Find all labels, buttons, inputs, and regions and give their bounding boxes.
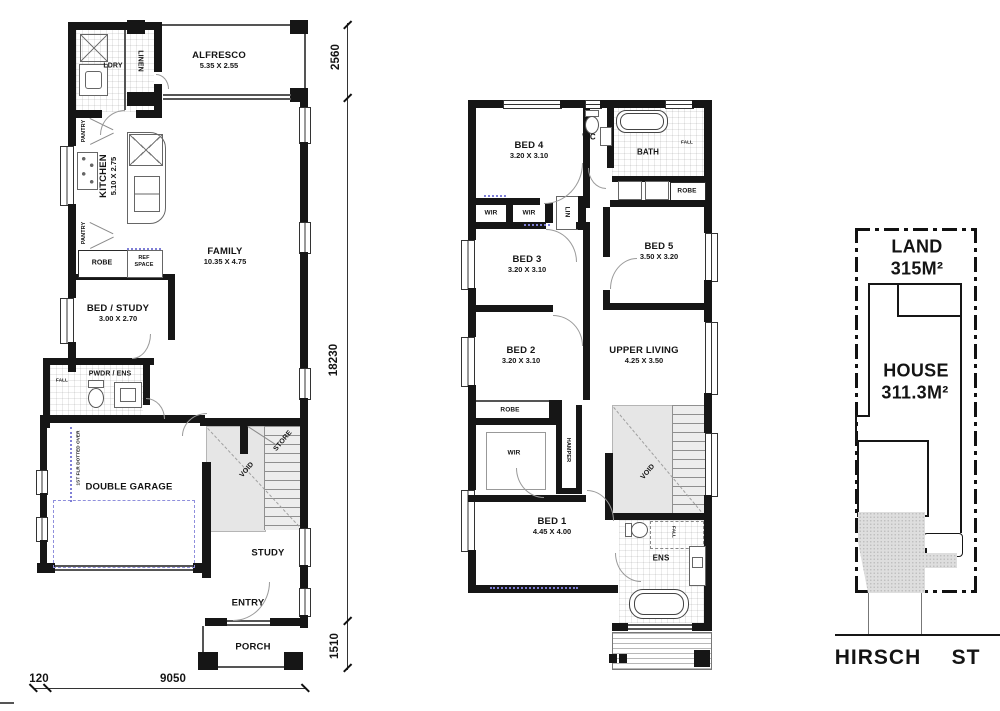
porch-post: [284, 652, 303, 670]
wall: [68, 110, 102, 118]
toilet-cistern: [88, 380, 104, 388]
room-label-study: STUDY: [251, 547, 284, 558]
pwdr-ens-label: PWDR / ENS: [89, 371, 132, 378]
fall-label: FALL: [56, 378, 68, 383]
lot-boundary: [855, 228, 858, 593]
powder-basin: [120, 388, 136, 402]
room-name: ENTRY: [232, 597, 265, 608]
wall: [468, 385, 476, 490]
door-arc: [156, 74, 169, 89]
wall: [704, 280, 712, 322]
bath-vanity-basin: [618, 181, 642, 200]
street-name: HIRSCH: [835, 646, 922, 670]
window-symbol: [299, 368, 311, 400]
wall: [704, 100, 712, 233]
window-symbol: [36, 470, 48, 495]
dim-house-length: 18230: [328, 344, 340, 376]
wall: [127, 92, 162, 106]
window-symbol: [461, 240, 475, 290]
room-label-bed4: BED 4 3.20 X 3.10: [510, 140, 548, 160]
wall: [300, 142, 308, 222]
dimension-line-vertical: [347, 23, 348, 670]
wall: [68, 342, 76, 372]
driveway-line: [921, 593, 922, 635]
room-name: STUDY: [251, 547, 284, 558]
bathtub-inner: [634, 593, 684, 615]
room-dims: 5.10 X 2.75: [109, 154, 118, 198]
first-floor-overlay-dashed-line: [70, 427, 72, 502]
wall: [556, 488, 582, 494]
house-area: 311.3M²: [881, 383, 948, 404]
balcony-door: [628, 624, 692, 626]
room-label-porch: PORCH: [235, 641, 270, 652]
wall: [612, 623, 628, 631]
dim-left-offset: 120: [29, 673, 49, 685]
wall: [68, 204, 76, 298]
room-dims: 4.45 X 4.00: [533, 527, 571, 536]
window-symbol: [60, 146, 74, 206]
window-symbol: [705, 433, 718, 497]
room-label-garage: DOUBLE GARAGE: [85, 481, 172, 492]
robe-label: ROBE: [92, 260, 113, 267]
window-symbol: [299, 528, 311, 567]
wall: [68, 22, 162, 30]
window-symbol: [503, 100, 562, 109]
street-suffix: ST: [952, 646, 981, 670]
wall: [468, 288, 476, 337]
room-dims: 3.20 X 3.10: [508, 265, 546, 274]
bath-vanity-basin: [645, 181, 669, 200]
toilet-bowl: [585, 116, 599, 134]
alfresco-edge: [162, 24, 292, 26]
first-floor-note: 1ST FLR DOTTED OVER: [76, 431, 81, 486]
room-label-kitchen: KITCHEN 5.10 X 2.75: [98, 154, 118, 198]
window-symbol: [36, 517, 48, 542]
room-name: BED 1: [533, 516, 571, 527]
wall: [612, 513, 712, 520]
dim-porch-depth: 1510: [329, 633, 341, 659]
lot-boundary: [974, 228, 977, 593]
wall: [610, 200, 712, 207]
door-arc: [146, 398, 165, 419]
bathtub-inner: [620, 113, 664, 130]
alfresco-post: [290, 20, 308, 34]
garage-door: [55, 569, 193, 571]
room-dims: 3.00 X 2.70: [87, 314, 149, 323]
room-label-bed5: BED 5 3.50 X 3.20: [640, 241, 678, 261]
room-name: UPPER LIVING: [609, 345, 678, 356]
house-outline-notch: [897, 315, 961, 317]
wall: [127, 20, 145, 34]
wall: [546, 495, 586, 502]
balcony-post: [609, 654, 617, 663]
room-label-upper-living: UPPER LIVING 4.25 X 3.50: [609, 345, 678, 365]
room-name: BED 5: [640, 241, 678, 252]
wall: [300, 252, 308, 368]
ldry-label: LDRY: [103, 63, 122, 70]
toilet-bowl: [88, 388, 104, 408]
room-label-bed3: BED 3 3.20 X 3.10: [508, 254, 546, 274]
room-name: BED 4: [510, 140, 548, 151]
sliding-door: [163, 94, 291, 96]
wall: [560, 100, 585, 108]
wall: [603, 207, 610, 257]
room-name: BED 3: [508, 254, 546, 265]
wall: [68, 22, 76, 118]
pantry-shelf-line: [90, 237, 114, 249]
lot-boundary: [855, 228, 977, 231]
kitchen-sink: [129, 134, 163, 166]
wall: [300, 565, 308, 588]
room-dims: 3.50 X 3.20: [640, 252, 678, 261]
wall: [168, 278, 175, 340]
wall: [600, 100, 665, 108]
wall: [704, 393, 712, 433]
house-label: HOUSE: [883, 361, 949, 382]
wall: [583, 312, 590, 400]
first-floor-overlay-dashed: [53, 500, 195, 568]
dim-frontage: 9050: [160, 673, 186, 685]
room-dims: 3.20 X 3.10: [510, 151, 548, 160]
wall: [68, 118, 76, 146]
pantry-label: PANTRY: [81, 120, 87, 143]
window-symbol: [461, 337, 475, 387]
house-outline: [868, 283, 870, 417]
wall: [549, 400, 556, 425]
wall: [40, 415, 205, 423]
room-label-bed2: BED 2 3.20 X 3.10: [502, 345, 540, 365]
window-symbol: [705, 233, 718, 282]
house-outline-notch: [897, 285, 899, 316]
hamper-label: HAMPER: [565, 438, 571, 462]
house-outline: [855, 415, 870, 417]
land-area: 315M²: [891, 259, 944, 280]
door-arc: [132, 334, 151, 359]
wc-label: WC: [582, 133, 596, 142]
door-arc: [588, 168, 606, 189]
laundry-sink-bowl: [85, 71, 102, 89]
ref-space-label: REF SPACE: [129, 255, 159, 269]
window-dashed: [490, 587, 578, 589]
washing-machine: [80, 34, 108, 62]
window-symbol: [60, 298, 74, 344]
robe-dashed: [484, 195, 506, 197]
wir-label: WIR: [523, 210, 536, 217]
floor-plan-sheet: LDRY LINEN PANTRY PANTRY KITCHEN 5.10 X …: [0, 0, 1000, 711]
fall-label: FALL: [672, 526, 677, 538]
robe-edge: [476, 400, 556, 402]
ens-basin: [692, 557, 703, 568]
entry-door: [227, 624, 270, 626]
window-symbol: [299, 222, 311, 254]
land-label: LAND: [891, 237, 942, 258]
overhead-dashed-line: [127, 248, 161, 250]
room-label-alfresco: ALFRESCO 5.35 X 2.55: [192, 50, 246, 70]
room-name: PORCH: [235, 641, 270, 652]
room-label-entry: ENTRY: [232, 597, 265, 608]
room-label-bed1: BED 1 4.45 X 4.00: [533, 516, 571, 536]
wall: [556, 400, 562, 492]
bath-label: BATH: [637, 148, 659, 157]
street-line: [835, 634, 1000, 636]
room-dims: 3.20 X 3.10: [502, 356, 540, 365]
wall: [136, 110, 162, 118]
room-name: DOUBLE GARAGE: [85, 481, 172, 492]
room-dims: 10.35 X 4.75: [204, 257, 247, 266]
shower: [650, 521, 704, 549]
house-outline: [855, 415, 857, 442]
wall: [545, 203, 553, 223]
dishwasher: [134, 176, 160, 212]
door-arc: [100, 110, 125, 135]
dimension-line-horizontal: [33, 688, 307, 689]
door-arc: [516, 468, 544, 498]
wall: [200, 418, 308, 426]
void-shading-upper: [612, 405, 674, 519]
wall: [610, 303, 712, 310]
wall: [40, 493, 47, 517]
cooktop: [77, 152, 98, 190]
wall: [468, 100, 476, 240]
window-symbol: [705, 322, 718, 395]
room-name: BED 2: [502, 345, 540, 356]
wall: [202, 462, 211, 578]
room-label-bed-study: BED / STUDY 3.00 X 2.70: [87, 303, 149, 323]
room-name: FAMILY: [204, 246, 247, 257]
wir-label: WIR: [485, 210, 498, 217]
window-symbol: [299, 107, 311, 144]
window-symbol: [299, 588, 311, 617]
wall: [583, 228, 590, 305]
robe-label: ROBE: [500, 407, 519, 414]
void-shading-ground: [206, 426, 266, 532]
room-name: KITCHEN: [98, 154, 109, 198]
room-dims: 4.25 X 3.50: [609, 356, 678, 365]
ens-label: ENS: [653, 554, 670, 563]
linen-label: LINEN: [137, 50, 144, 72]
wir-label: WIR: [508, 450, 521, 457]
driveway-line: [868, 593, 869, 635]
robe-dashed: [524, 224, 550, 226]
porch-post: [198, 652, 218, 670]
wall: [603, 290, 610, 310]
wall: [205, 618, 227, 626]
fall-label: FALL: [681, 140, 693, 145]
house-outline: [868, 283, 962, 285]
laundry-linen-partition: [124, 30, 126, 110]
edge-artifact-line: [0, 702, 14, 704]
house-garage-outline: [857, 440, 929, 517]
door-arc: [610, 258, 637, 289]
lin-label: LIN: [564, 207, 571, 218]
room-name: ALFRESCO: [192, 50, 246, 61]
door-arc: [546, 229, 577, 262]
wall: [40, 420, 47, 470]
window-symbol: [665, 100, 694, 109]
house-outline: [960, 283, 962, 533]
wall: [476, 418, 556, 425]
sliding-door: [163, 98, 291, 100]
wall: [50, 358, 154, 365]
pantry-shelf-line: [90, 222, 114, 234]
robe-label: ROBE: [677, 188, 696, 195]
toilet-bowl: [631, 522, 648, 538]
wall: [692, 623, 712, 631]
room-label-family: FAMILY 10.35 X 4.75: [204, 246, 247, 266]
balcony-door: [628, 628, 692, 630]
wc-basin: [600, 127, 612, 146]
wall: [468, 305, 553, 312]
dim-alfresco-depth: 2560: [330, 44, 342, 70]
balcony-post: [694, 650, 710, 667]
balcony-post: [619, 654, 627, 663]
wall: [154, 22, 162, 72]
room-dims: 5.35 X 2.55: [192, 61, 246, 70]
wall: [576, 405, 582, 492]
room-name: BED / STUDY: [87, 303, 149, 314]
wall: [270, 618, 308, 626]
door-arc: [553, 315, 583, 346]
pantry-label: PANTRY: [81, 222, 87, 245]
wall: [506, 198, 513, 224]
store-partition: [240, 426, 248, 454]
staircase-upper: [672, 405, 705, 517]
